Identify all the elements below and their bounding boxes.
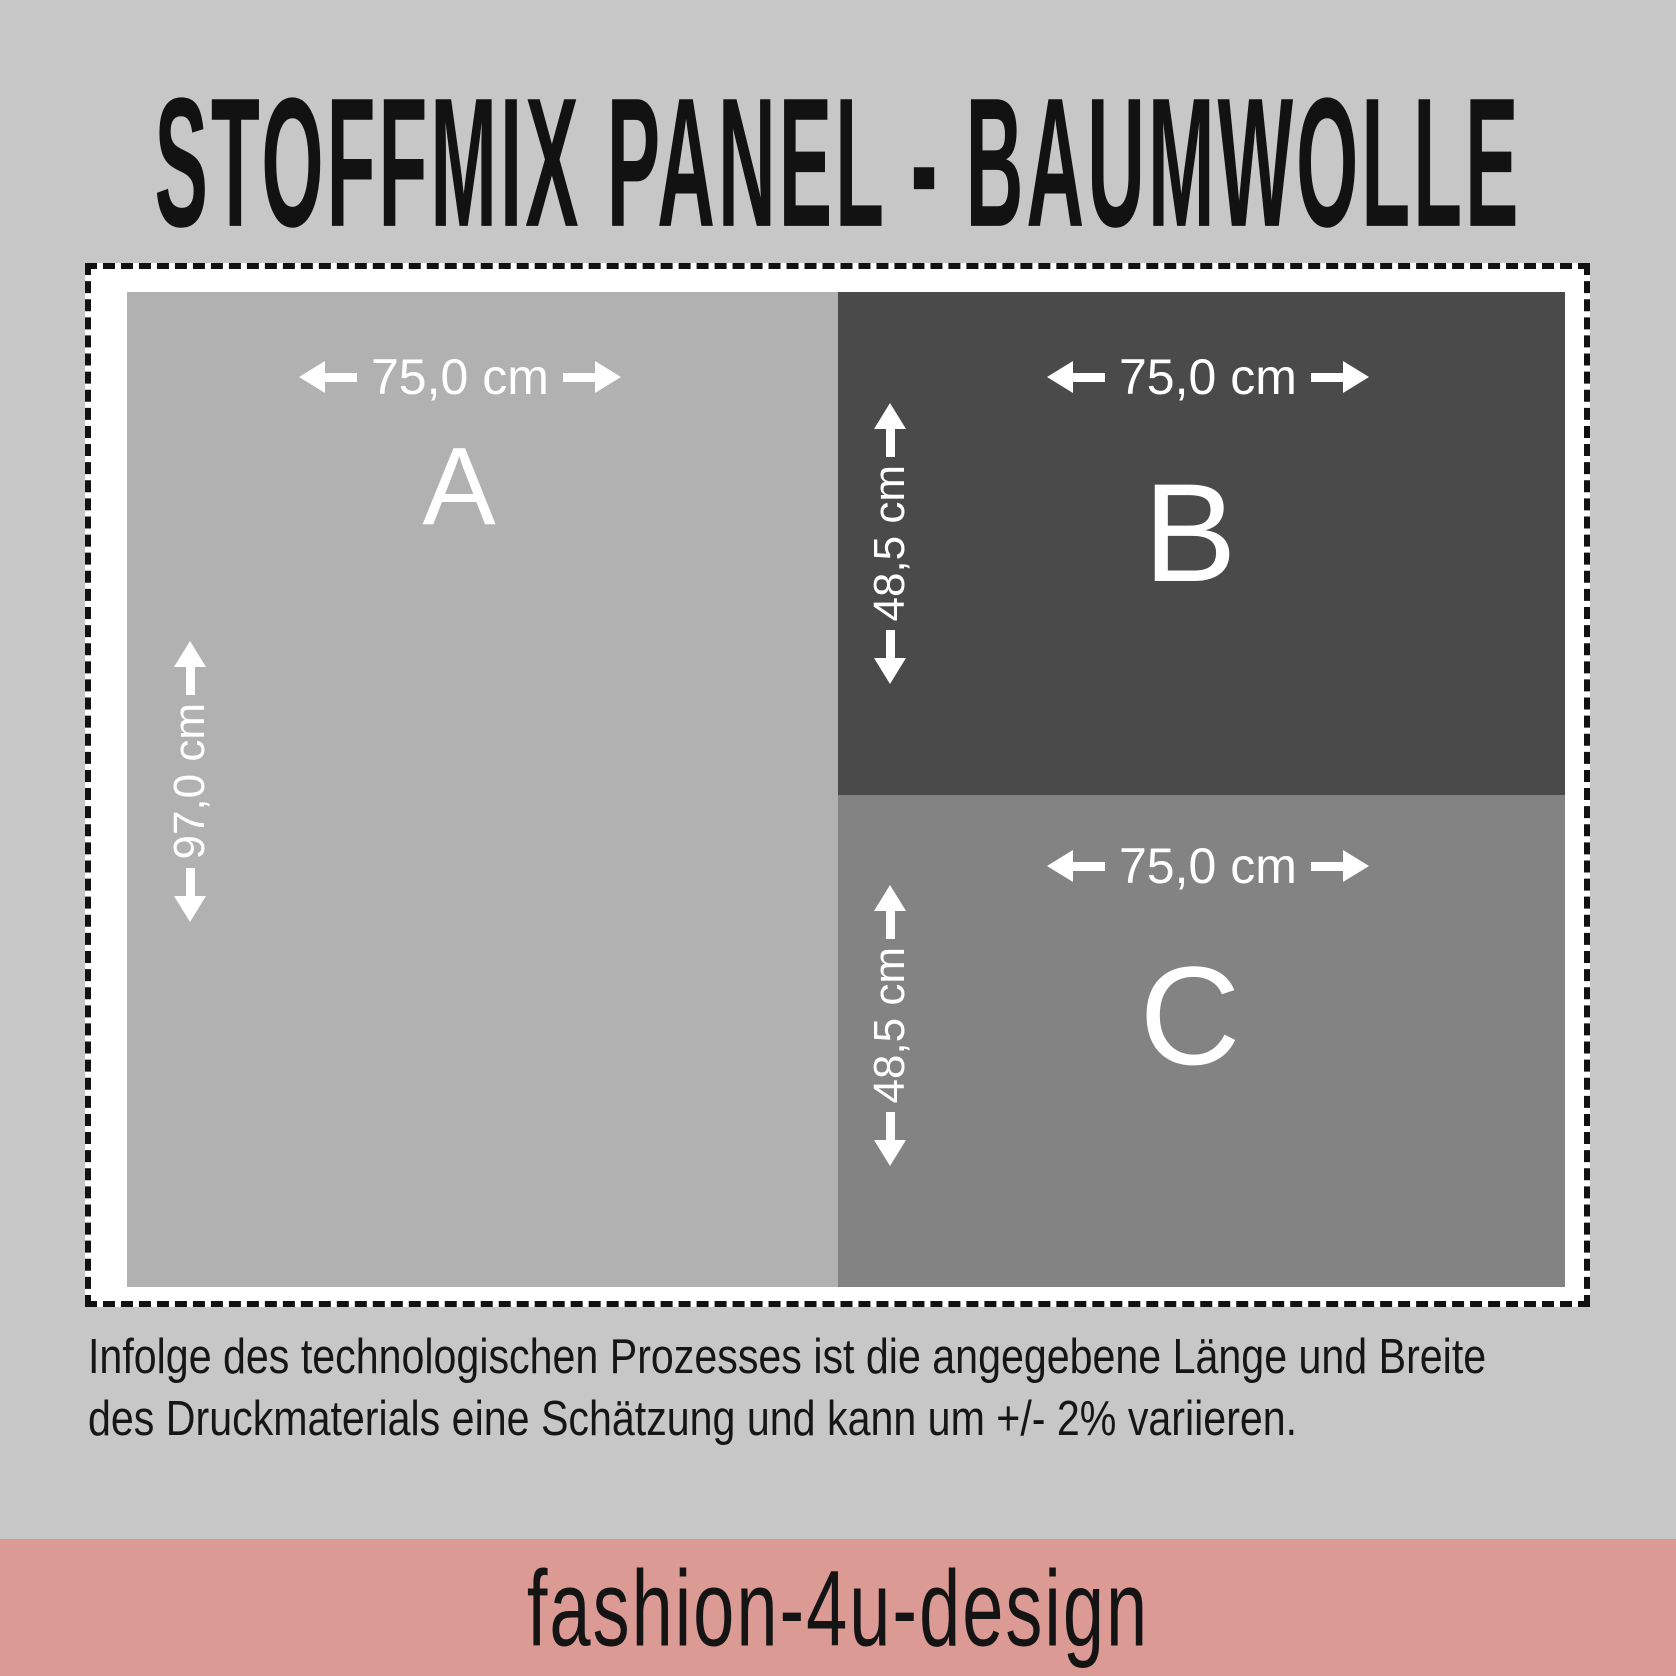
panel-b-height-dimension: 48,5 cm [868,403,912,684]
arrow-left-icon [1047,361,1105,393]
panel-b-height-label: 48,5 cm [868,465,912,622]
panel-a-width-dimension: 75,0 cm [299,352,621,402]
panel-b-letter: B [1125,463,1255,603]
panel-a-letter: A [399,432,519,542]
disclaimer-line: des Druckmaterials eine Schätzung und ka… [88,1388,1516,1450]
arrow-right-icon [1311,361,1369,393]
arrow-right-icon [1311,850,1369,882]
disclaimer-line: Infolge des technologischen Prozesses is… [88,1326,1516,1388]
panel-a-height-label: 97,0 cm [168,703,212,860]
panel-c-height-dimension: 48,5 cm [868,885,912,1166]
arrow-up-icon [874,403,906,457]
cut-panel-outline: STOFFMIX-PANEL für Schultüten & Accessoi… [85,263,1590,1307]
brand-name: fashion-4u-design [0,1547,1676,1670]
panel-c-width-label: 75,0 cm [1119,841,1297,891]
panel-c-height-label: 48,5 cm [868,947,912,1104]
panel-a-height-dimension: 97,0 cm [168,641,212,922]
selvedge-strip-content: STOFFMIX-PANEL für Schultüten & Accessoi… [93,281,95,1297]
panel-b-width-label: 75,0 cm [1119,352,1297,402]
panel-b-width-dimension: 75,0 cm [1047,352,1369,402]
footer-bar: fashion-4u-design [0,1539,1676,1676]
panel-a-width-label: 75,0 cm [371,352,549,402]
panel-a: 75,0 cm A 97,0 cm [127,292,838,1287]
arrow-left-icon [299,361,357,393]
arrow-down-icon [874,630,906,684]
arrow-up-icon [874,885,906,939]
panel-b: 75,0 cm B 48,5 cm [838,292,1565,795]
disclaimer-text: Infolge des technologischen Prozesses is… [88,1326,1516,1450]
panel-c-width-dimension: 75,0 cm [1047,841,1369,891]
arrow-up-icon [174,641,206,695]
arrow-down-icon [174,868,206,922]
page: STOFFMIX PANEL - BAUMWOLLE STOFFMIX-PANE… [0,0,1676,1676]
arrow-left-icon [1047,850,1105,882]
page-title: STOFFMIX PANEL - BAUMWOLLE [0,58,1676,270]
arrow-down-icon [874,1112,906,1166]
panel-c-letter: C [1125,946,1255,1086]
arrow-right-icon [563,361,621,393]
panel-c: 75,0 cm C 48,5 cm [838,795,1565,1287]
